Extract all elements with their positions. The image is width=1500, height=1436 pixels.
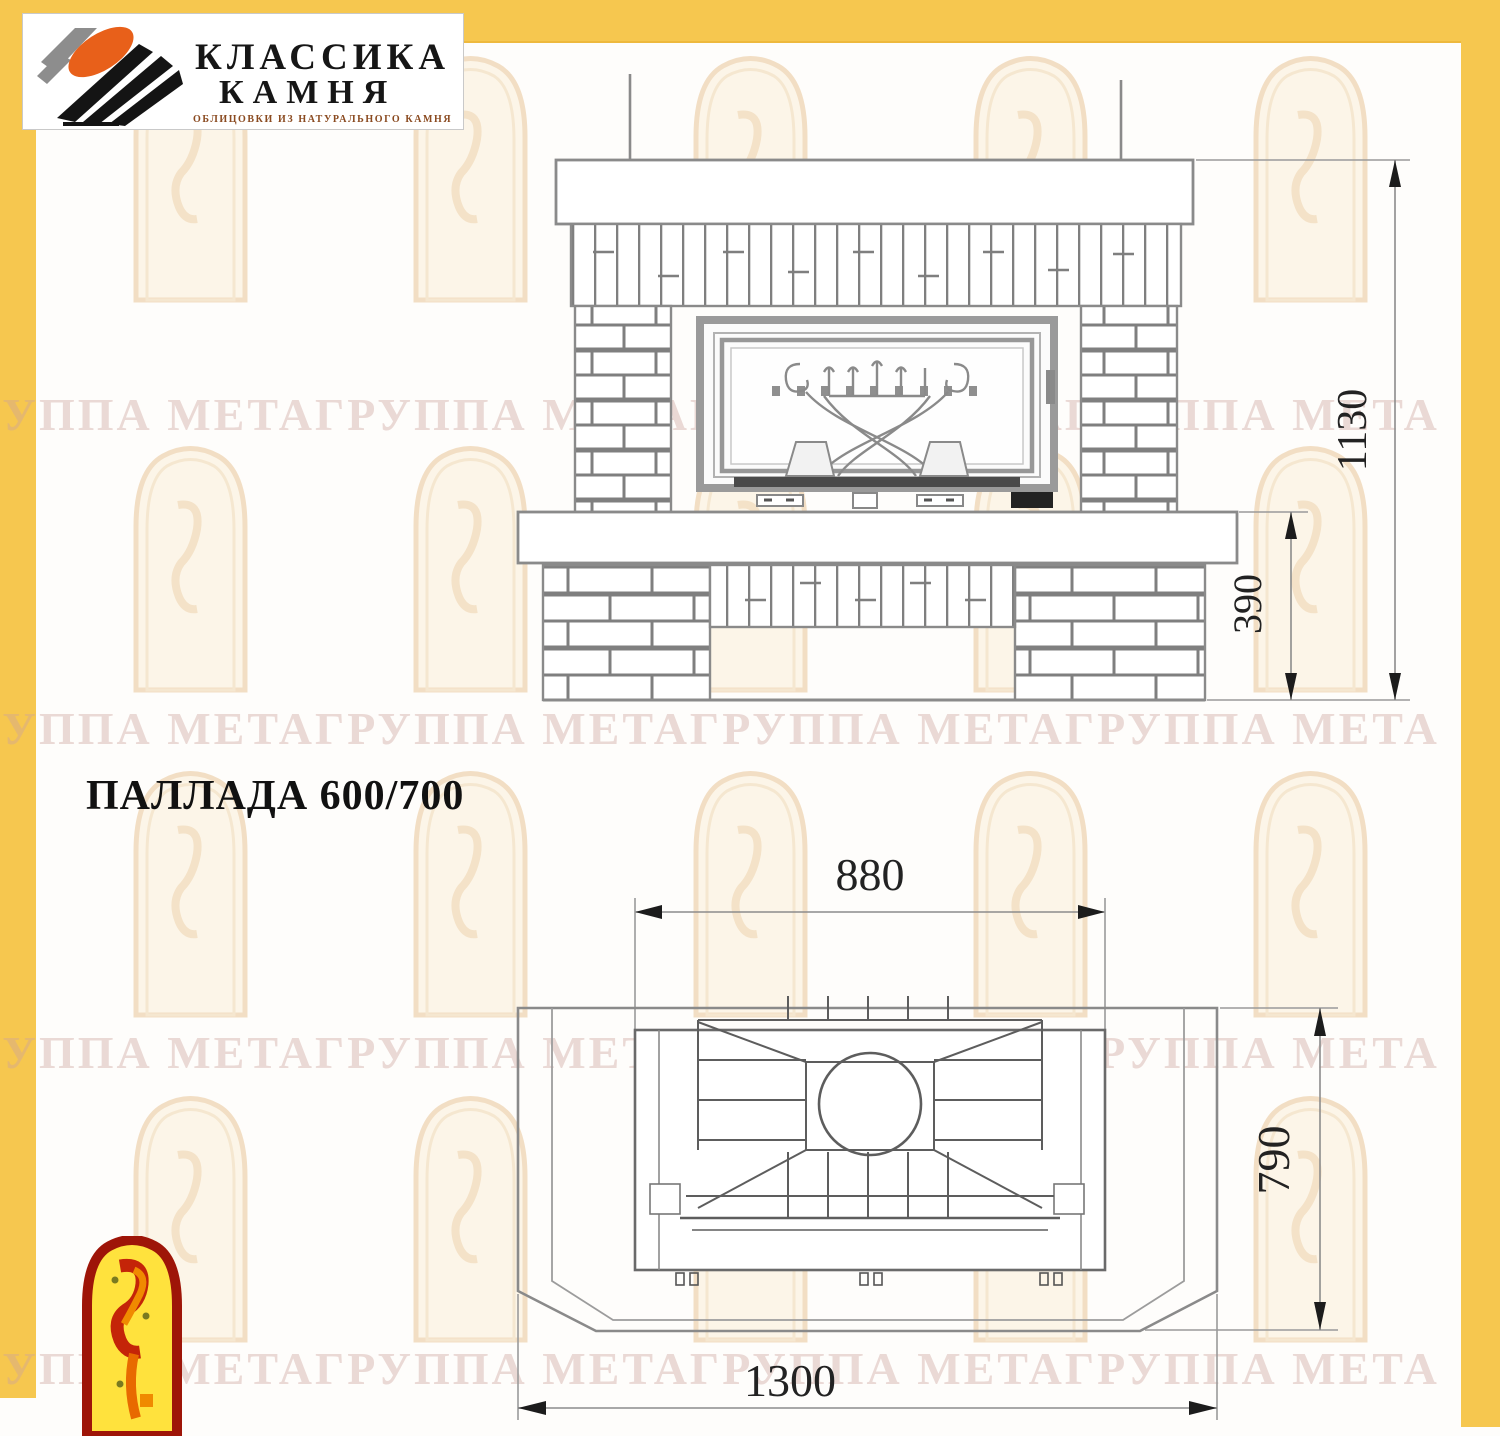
- plan-dim-depth: 790: [1145, 1008, 1338, 1330]
- watermark-arch: [136, 449, 245, 691]
- soldier-brick-band: [571, 224, 1181, 306]
- company-logo-box: КЛАССИКА КАМНЯ ОБЛИЦОВКИ ИЗ НАТУРАЛЬНОГО…: [22, 13, 464, 130]
- front-elevation-drawing: 1130 390: [500, 50, 1450, 730]
- hearth-shelf: [518, 512, 1237, 563]
- plan-dim-firebox-width: 880: [635, 849, 1105, 1030]
- brick-pier-right: [1081, 306, 1177, 512]
- dim-firebox-width: 880: [836, 849, 905, 900]
- firebox-door: [700, 320, 1055, 508]
- dim-depth: 790: [1248, 1126, 1299, 1195]
- brand-name-line1: КЛАССИКА: [195, 36, 450, 79]
- page-title: ПАЛЛАДА 600/700: [86, 772, 464, 820]
- door-latch: [1046, 370, 1055, 404]
- dim-total-height: 1130: [1330, 389, 1376, 471]
- brand-tagline: ОБЛИЦОВКИ ИЗ НАТУРАЛЬНОГО КАМНЯ: [193, 114, 452, 125]
- brick-pier-left: [575, 306, 671, 512]
- brand-name-line2: КАМНЯ: [219, 74, 396, 112]
- base-plinth: [543, 565, 1205, 700]
- chimney-stubs: [630, 74, 1121, 160]
- door-bottom-bar: [734, 477, 1020, 487]
- plan-dim-total-width: 1300: [518, 1294, 1217, 1420]
- arch-emblem-icon: [82, 1236, 182, 1436]
- insert-housing: [635, 1030, 1105, 1285]
- mounting-marks: [676, 1273, 1062, 1285]
- front-dimensions: 1130 390: [1196, 160, 1410, 700]
- dim-hearth-height: 390: [1225, 574, 1270, 634]
- plan-view-drawing: 880: [490, 830, 1390, 1430]
- dim-total-width: 1300: [744, 1355, 836, 1406]
- mantel-shelf: [556, 160, 1193, 224]
- stone-stripes-logo-icon: [23, 14, 183, 127]
- control-strip: [757, 492, 1053, 508]
